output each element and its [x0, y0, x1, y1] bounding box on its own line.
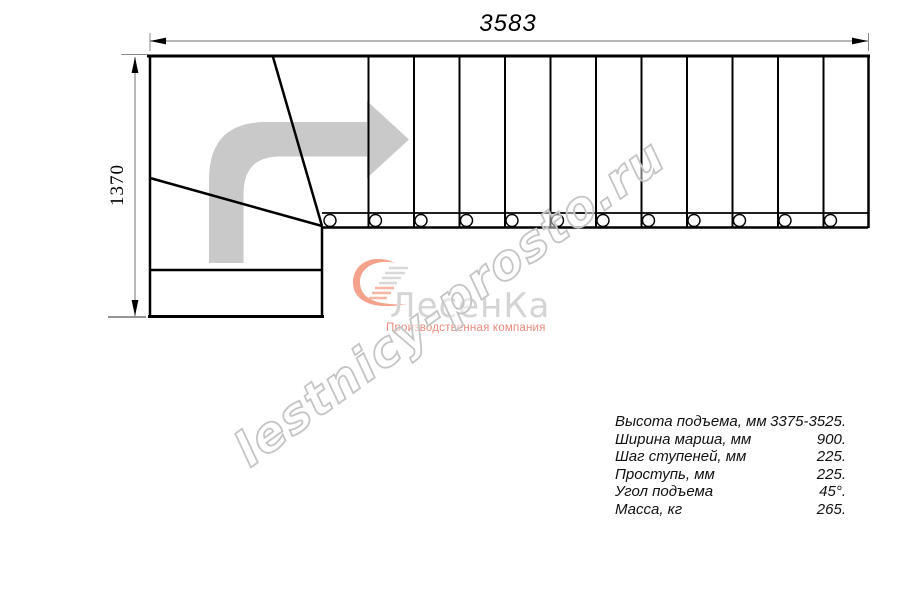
dimension-label-width: 3583: [462, 10, 554, 38]
dimension-arrowhead-bottom: [132, 300, 139, 316]
spec-value: 45°.: [819, 483, 846, 500]
specifications-table: Высота подъема, мм 3375-3525. Ширина мар…: [615, 413, 846, 519]
baluster-circle: [461, 215, 473, 227]
spec-label: Масса, кг: [615, 501, 682, 518]
dimension-label-depth: 1370: [107, 129, 127, 241]
baluster-circle: [370, 215, 382, 227]
spec-row-flight-width: Ширина марша, мм 900.: [615, 431, 846, 449]
dimension-arrowhead-right: [852, 38, 868, 45]
spec-value: 900.: [817, 431, 846, 448]
baluster-circle: [415, 215, 427, 227]
spec-label: Ширина марша, мм: [615, 431, 751, 448]
spec-value: 225.: [817, 448, 846, 465]
spec-label: Высота подъема, мм: [615, 413, 767, 430]
baluster-circle: [779, 215, 791, 227]
dimension-arrowhead-top: [132, 57, 139, 73]
spec-row-climb-angle: Угол подъема 45°.: [615, 483, 846, 501]
spec-label: Проступь, мм: [615, 466, 715, 483]
baluster-circle: [734, 215, 746, 227]
spec-value: 3375-3525.: [770, 413, 846, 430]
dimension-arrowhead-left: [150, 38, 166, 45]
spec-row-step-pitch: Шаг ступеней, мм 225.: [615, 448, 846, 466]
drawing-canvas: 3583 1370 ЛесенКа Производственная компа…: [0, 0, 900, 600]
baluster-circle: [688, 215, 700, 227]
spec-value: 225.: [817, 466, 846, 483]
logo-step-lines-gray: [379, 268, 408, 283]
spec-label: Шаг ступеней, мм: [615, 448, 746, 465]
spec-label: Угол подъема: [615, 483, 713, 500]
baluster-circle: [825, 215, 837, 227]
baluster-circle: [324, 215, 336, 227]
spec-value: 265.: [817, 501, 846, 518]
staircase-drawing-page: { "drawing": { "top_dimension": "3583", …: [0, 0, 900, 600]
spec-row-lift-height: Высота подъема, мм 3375-3525.: [615, 413, 846, 431]
spec-row-mass: Масса, кг 265.: [615, 501, 846, 519]
baluster-circle: [643, 215, 655, 227]
spec-row-tread-depth: Проступь, мм 225.: [615, 466, 846, 484]
